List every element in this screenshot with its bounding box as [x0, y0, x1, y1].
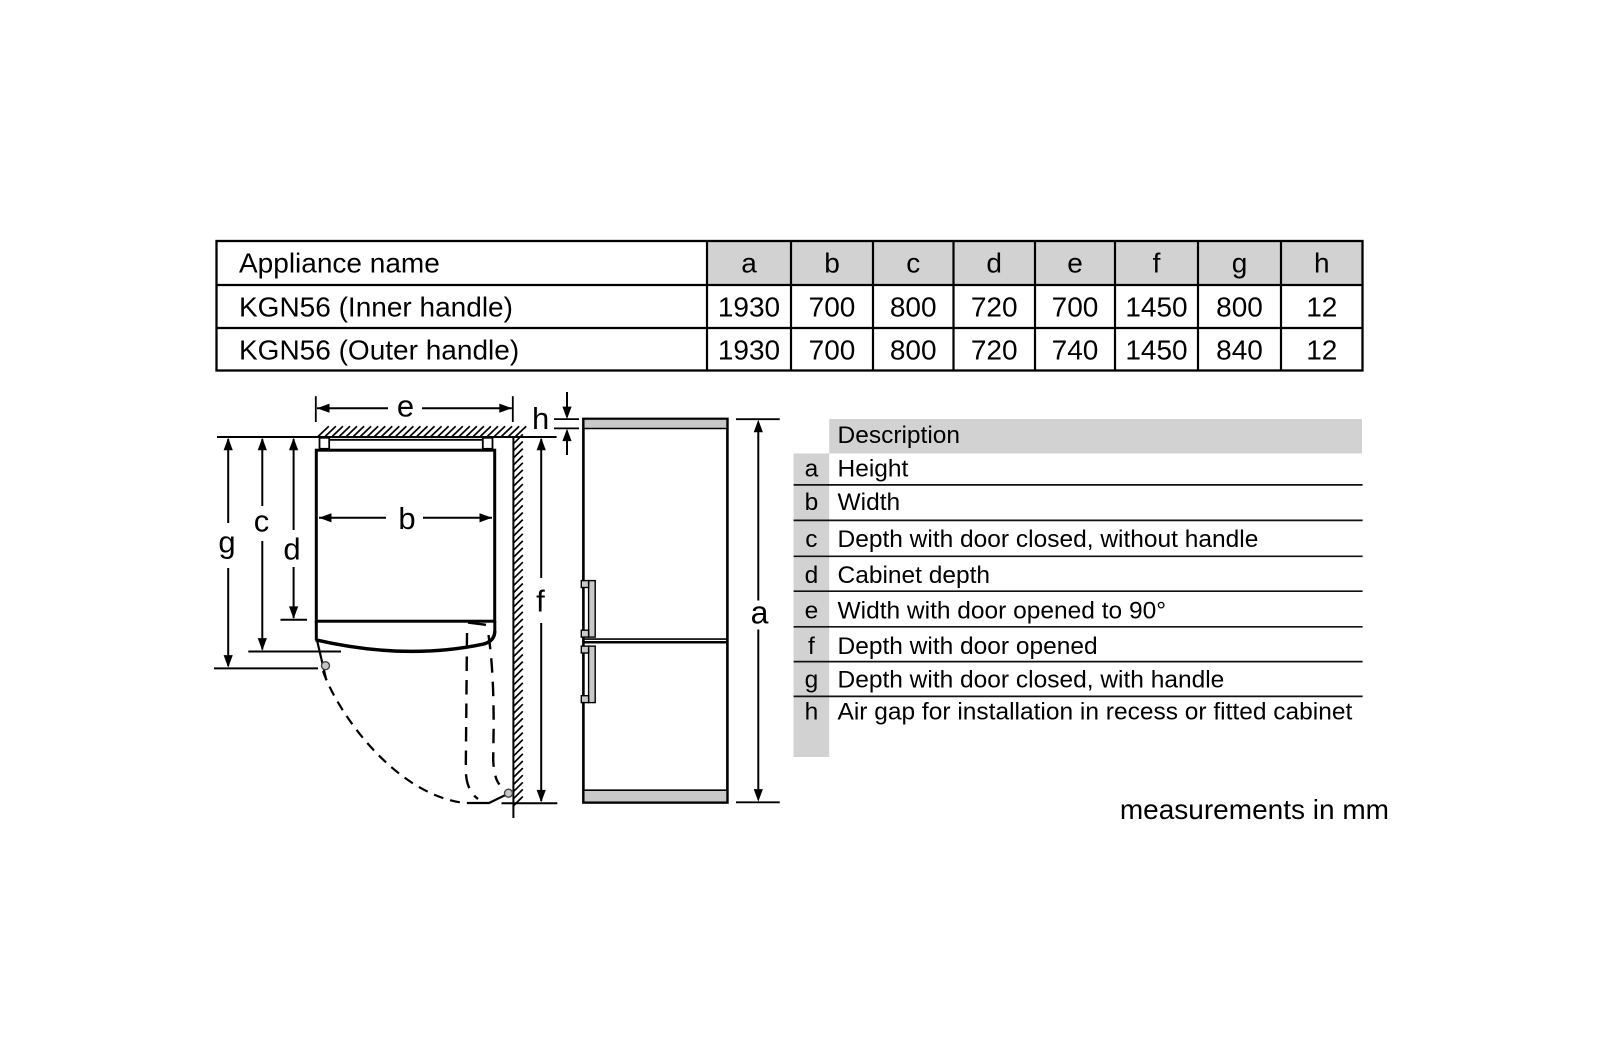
svg-text:800: 800	[890, 292, 937, 323]
svg-text:Depth with door closed, withou: Depth with door closed, without handle	[838, 526, 1259, 553]
svg-text:Air gap for installation in re: Air gap for installation in recess or fi…	[838, 699, 1353, 726]
svg-text:1450: 1450	[1125, 292, 1187, 323]
svg-text:Height: Height	[838, 456, 909, 483]
svg-text:e: e	[397, 389, 414, 424]
svg-text:measurements in mm: measurements in mm	[1120, 794, 1389, 825]
svg-text:Width: Width	[838, 489, 901, 516]
svg-text:a: a	[805, 456, 819, 483]
svg-text:840: 840	[1216, 335, 1263, 366]
svg-text:e: e	[805, 597, 819, 624]
svg-text:740: 740	[1052, 335, 1099, 366]
svg-text:c: c	[906, 248, 920, 279]
svg-text:f: f	[1153, 248, 1161, 279]
svg-text:b: b	[805, 489, 819, 516]
svg-text:b: b	[398, 501, 415, 536]
svg-text:700: 700	[1052, 292, 1099, 323]
svg-text:800: 800	[890, 335, 937, 366]
svg-text:g: g	[1232, 248, 1248, 279]
svg-text:c: c	[805, 526, 817, 553]
svg-text:f: f	[536, 584, 545, 619]
svg-text:d: d	[986, 248, 1002, 279]
svg-text:a: a	[751, 595, 769, 631]
svg-text:d: d	[805, 562, 819, 589]
svg-text:Width with door opened to 90°: Width with door opened to 90°	[838, 597, 1167, 624]
svg-text:800: 800	[1216, 292, 1263, 323]
svg-text:700: 700	[809, 292, 856, 323]
svg-text:Depth with door closed, with h: Depth with door closed, with handle	[838, 666, 1225, 693]
svg-text:12: 12	[1306, 292, 1337, 323]
svg-text:h: h	[1314, 248, 1330, 279]
svg-text:g: g	[218, 525, 235, 560]
svg-text:g: g	[805, 666, 819, 693]
svg-text:700: 700	[809, 335, 856, 366]
svg-text:720: 720	[971, 292, 1018, 323]
svg-text:f: f	[808, 633, 815, 660]
svg-text:a: a	[741, 248, 757, 279]
svg-text:b: b	[824, 248, 840, 279]
svg-text:1450: 1450	[1125, 335, 1187, 366]
svg-text:e: e	[1067, 248, 1083, 279]
svg-text:d: d	[283, 532, 300, 567]
svg-text:c: c	[254, 503, 270, 538]
svg-text:Depth with door opened: Depth with door opened	[838, 633, 1098, 660]
svg-text:Description: Description	[838, 422, 961, 449]
svg-text:h: h	[805, 699, 819, 726]
svg-text:1930: 1930	[718, 292, 780, 323]
svg-text:12: 12	[1306, 335, 1337, 366]
svg-text:KGN56 (Outer handle): KGN56 (Outer handle)	[239, 335, 519, 366]
svg-text:720: 720	[971, 335, 1018, 366]
svg-text:1930: 1930	[718, 335, 780, 366]
svg-text:Appliance name: Appliance name	[239, 248, 440, 279]
svg-text:Cabinet depth: Cabinet depth	[838, 562, 991, 589]
svg-text:KGN56 (Inner handle): KGN56 (Inner handle)	[239, 292, 513, 323]
svg-text:h: h	[532, 401, 549, 436]
